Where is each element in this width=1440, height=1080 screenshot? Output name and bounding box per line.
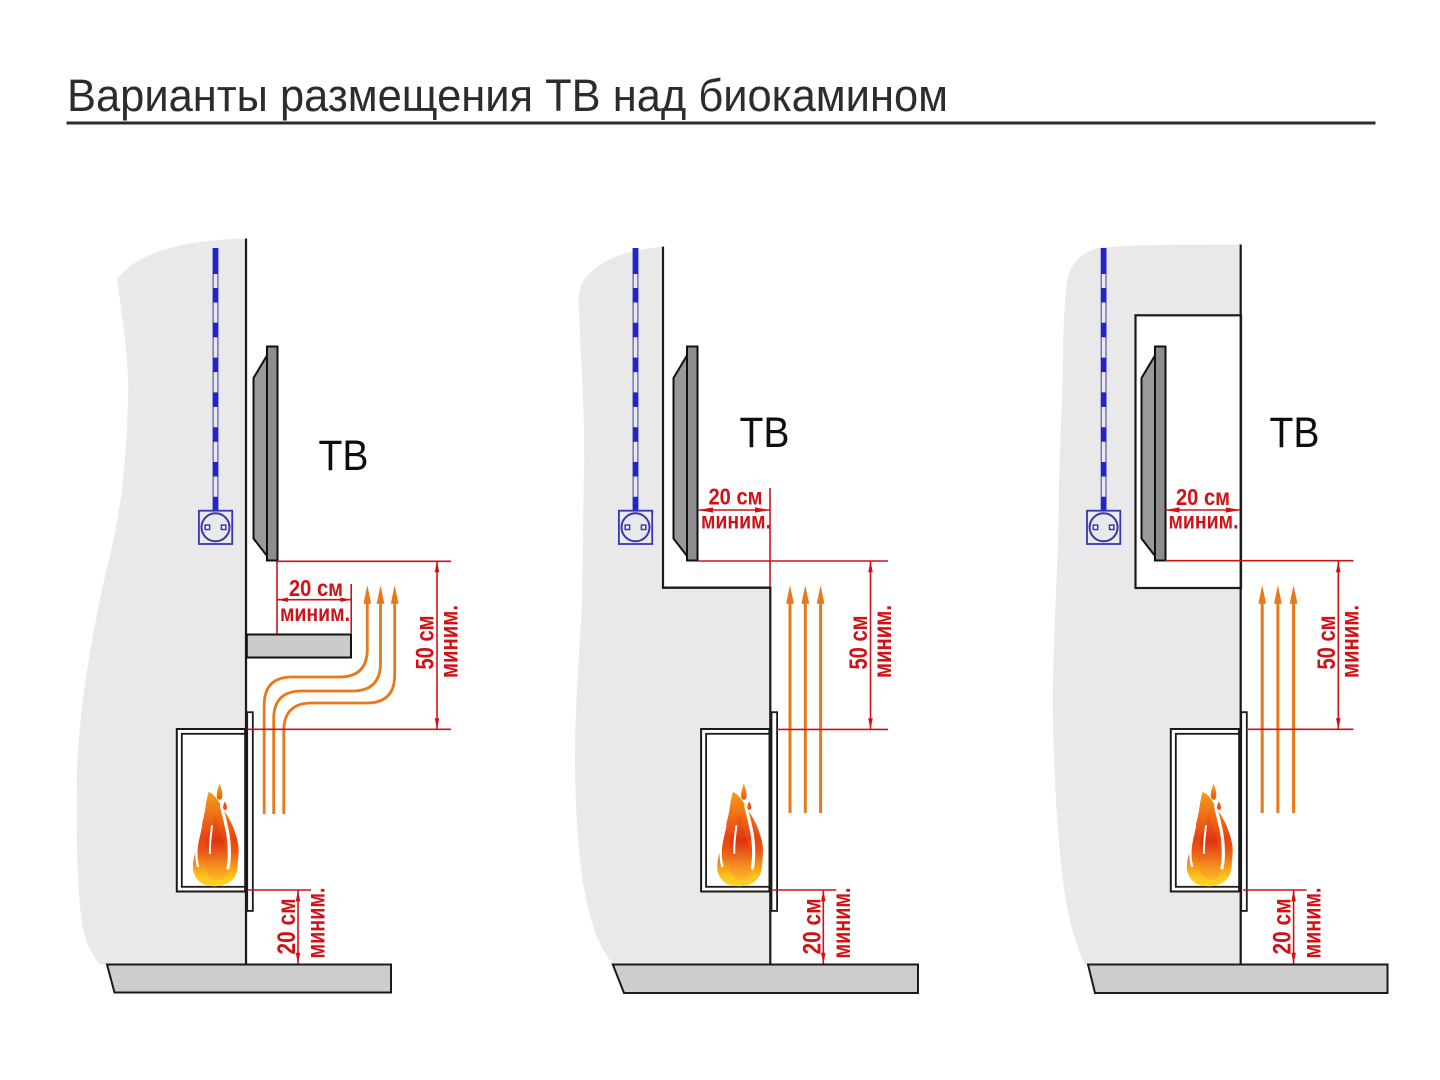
svg-text:20 см: 20 см bbox=[709, 484, 763, 510]
svg-text:миним.: миним. bbox=[280, 600, 350, 626]
svg-text:ТВ: ТВ bbox=[1270, 409, 1320, 457]
svg-text:миним.: миним. bbox=[701, 507, 771, 533]
svg-text:20 см: 20 см bbox=[289, 575, 343, 601]
svg-text:миним.: миним. bbox=[1169, 508, 1239, 534]
svg-text:20 см: 20 см bbox=[1176, 484, 1230, 510]
svg-text:ТВ: ТВ bbox=[319, 432, 369, 480]
svg-text:Варианты размещения ТВ над био: Варианты размещения ТВ над биокамином bbox=[67, 70, 948, 121]
svg-text:ТВ: ТВ bbox=[740, 409, 790, 457]
